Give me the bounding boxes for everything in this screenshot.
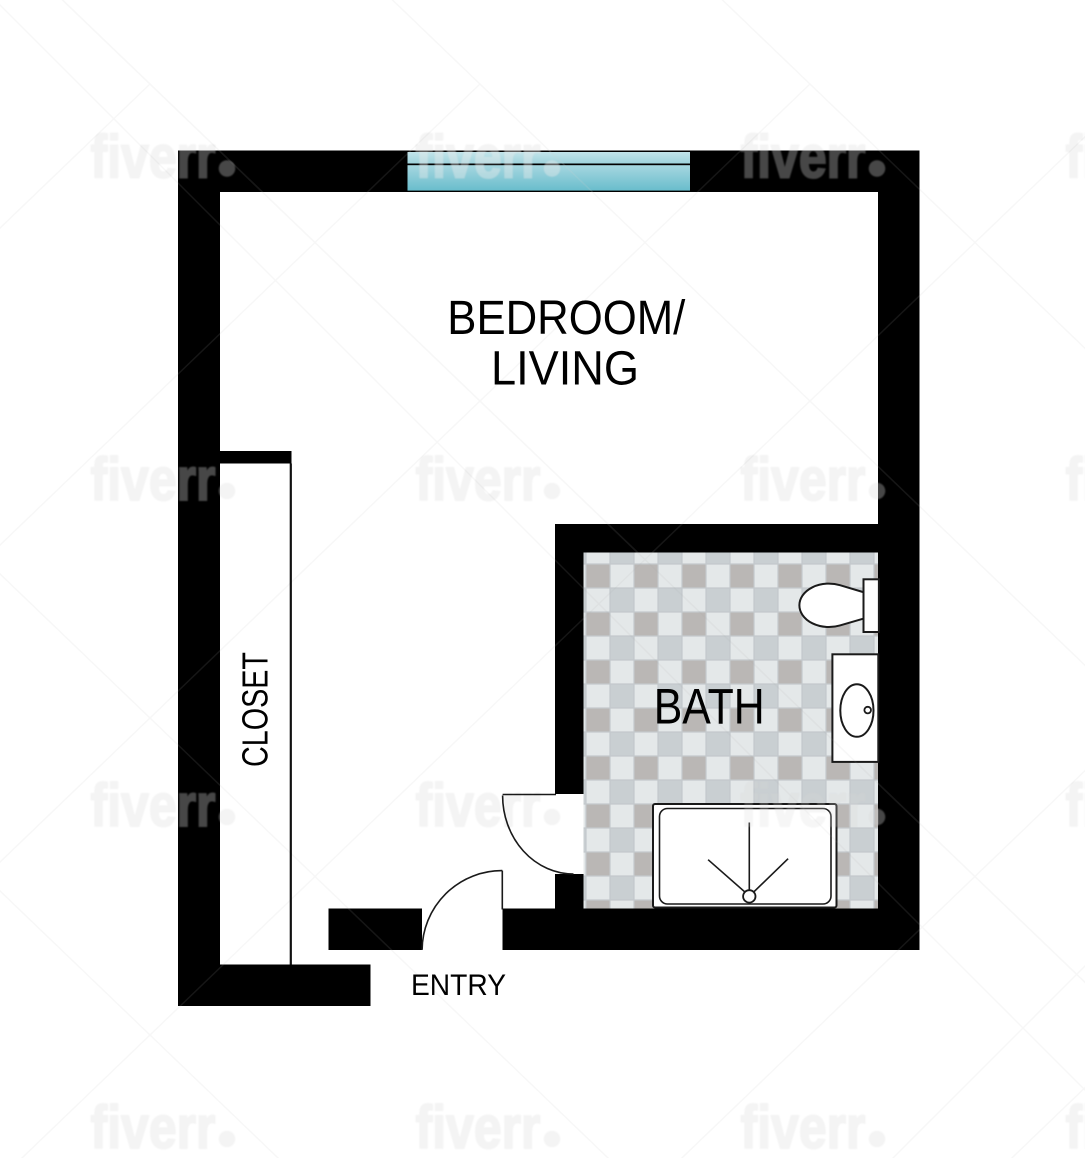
svg-text:BATH: BATH — [654, 678, 765, 735]
svg-text:ENTRY: ENTRY — [411, 969, 506, 1002]
svg-text:CLOSET: CLOSET — [235, 652, 276, 767]
